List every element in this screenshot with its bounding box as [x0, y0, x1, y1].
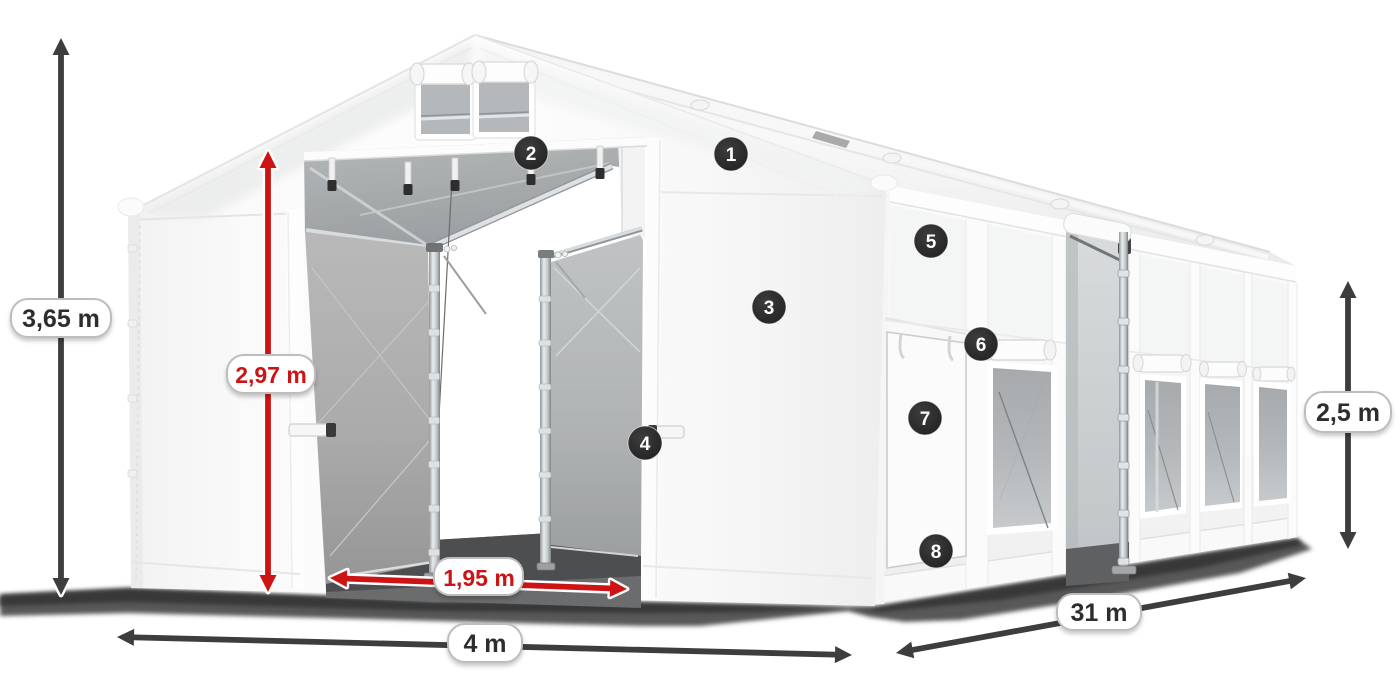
- svg-text:1,95 m: 1,95 m: [443, 565, 515, 591]
- svg-text:5: 5: [926, 232, 937, 253]
- svg-text:2,97 m: 2,97 m: [235, 362, 307, 388]
- svg-text:1: 1: [726, 145, 737, 166]
- svg-text:31 m: 31 m: [1071, 599, 1128, 627]
- svg-text:4 m: 4 m: [463, 630, 506, 658]
- svg-text:6: 6: [976, 335, 987, 356]
- svg-text:2,5 m: 2,5 m: [1316, 399, 1380, 427]
- svg-text:7: 7: [920, 409, 931, 430]
- svg-text:3: 3: [764, 298, 775, 319]
- svg-text:3,65 m: 3,65 m: [22, 305, 100, 333]
- svg-text:4: 4: [640, 434, 651, 455]
- svg-text:2: 2: [526, 144, 537, 165]
- svg-text:8: 8: [931, 542, 942, 563]
